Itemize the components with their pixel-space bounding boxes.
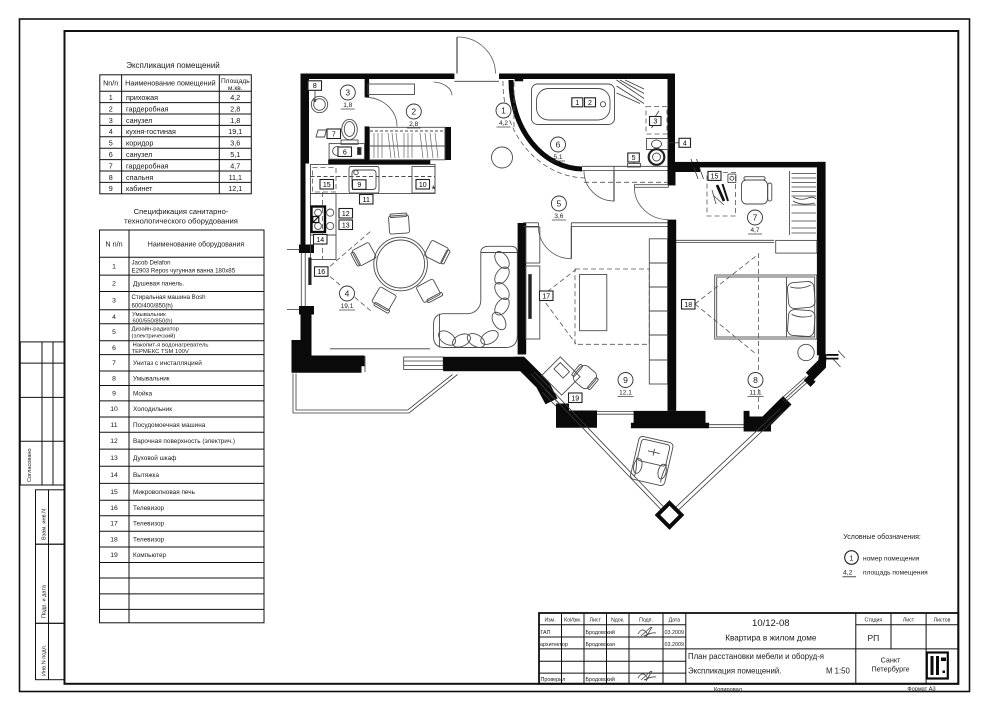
svg-text:Изм.: Изм. [544, 618, 555, 624]
svg-text:Наименование оборудования: Наименование оборудования [148, 241, 245, 249]
svg-text:Унитаз с инсталляцией: Унитаз с инсталляцией [133, 359, 202, 367]
svg-text:5,1: 5,1 [230, 150, 240, 159]
svg-text:600/400/850(h): 600/400/850(h) [132, 302, 173, 309]
svg-text:600/550/850(h): 600/550/850(h) [133, 318, 173, 324]
svg-text:5: 5 [557, 199, 562, 209]
svg-text:Подп.: Подп. [639, 618, 653, 624]
svg-text:Согласовано: Согласовано [27, 448, 33, 482]
svg-text:4: 4 [683, 141, 687, 148]
svg-text:технологического оборудования: технологического оборудования [124, 217, 238, 226]
svg-text:8: 8 [112, 376, 116, 383]
svg-text:1,8: 1,8 [230, 116, 240, 125]
svg-text:6: 6 [112, 345, 116, 352]
svg-text:Подр. и дата: Подр. и дата [42, 584, 48, 618]
svg-text:18: 18 [684, 302, 692, 309]
svg-text:архитектор: архитектор [540, 642, 568, 648]
svg-text:Инв.N подл.: Инв.N подл. [42, 644, 48, 676]
svg-text:Экспликация помещений.: Экспликация помещений. [688, 667, 781, 676]
svg-text:19: 19 [571, 395, 579, 402]
svg-text:Квартира в жилом доме: Квартира в жилом доме [725, 634, 817, 643]
svg-text:площадь помещения: площадь помещения [863, 570, 928, 577]
svg-text:номер помещения: номер помещения [863, 556, 920, 563]
svg-text:1: 1 [109, 93, 113, 102]
svg-text:4: 4 [112, 314, 116, 321]
svg-text:4,2: 4,2 [230, 93, 240, 102]
svg-text:9: 9 [357, 182, 361, 189]
svg-text:Умывальник: Умывальник [132, 312, 166, 318]
svg-text:(электрический): (электрический) [132, 333, 176, 340]
svg-text:5: 5 [112, 329, 116, 336]
svg-text:1: 1 [112, 264, 116, 271]
svg-text:3: 3 [345, 88, 350, 98]
svg-text:Петербурге: Петербурге [871, 665, 909, 674]
svg-text:15: 15 [110, 489, 118, 496]
svg-text:9: 9 [623, 375, 628, 385]
svg-text:Санкт: Санкт [881, 656, 901, 665]
svg-text:4,2: 4,2 [499, 120, 508, 127]
svg-text:санузел: санузел [126, 116, 152, 125]
svg-text:2: 2 [109, 104, 113, 113]
svg-text:М 1:50: М 1:50 [826, 667, 850, 676]
svg-text:2: 2 [112, 281, 116, 288]
svg-text:19: 19 [110, 552, 118, 559]
svg-text:4,7: 4,7 [750, 227, 759, 234]
svg-text:Лист: Лист [903, 618, 915, 624]
svg-text:Душевая панель.: Душевая панель. [133, 281, 184, 288]
svg-text:Лист: Лист [590, 618, 602, 624]
svg-text:Спецификация санитарно-: Спецификация санитарно- [134, 207, 229, 216]
svg-text:1: 1 [501, 106, 506, 116]
svg-text:ТЕРМЕКС TSM 100V: ТЕРМЕКС TSM 100V [132, 349, 189, 355]
svg-text:6: 6 [109, 150, 113, 159]
svg-text:4,7: 4,7 [230, 161, 240, 170]
svg-text:Jacob Delafon: Jacob Delafon [132, 260, 171, 267]
svg-text:15: 15 [323, 182, 331, 189]
svg-text:м.кв.: м.кв. [228, 85, 243, 92]
svg-text:Взам. инв.N: Взам. инв.N [42, 509, 48, 540]
svg-text:13: 13 [342, 222, 350, 229]
svg-text:7: 7 [332, 131, 336, 138]
svg-text:Условные обозначения:: Условные обозначения: [843, 533, 921, 541]
svg-text:11,1: 11,1 [229, 173, 242, 182]
svg-text:Телевизор: Телевизор [133, 537, 165, 544]
svg-text:17: 17 [542, 293, 550, 300]
svg-text:3: 3 [112, 298, 116, 305]
svg-text:9: 9 [112, 391, 116, 398]
svg-text:10/12-08: 10/12-08 [752, 618, 790, 629]
svg-text:17: 17 [110, 521, 118, 528]
svg-text:11,1: 11,1 [749, 390, 762, 397]
svg-text:Мойка: Мойка [133, 390, 152, 398]
svg-text:Nдок.: Nдок. [611, 618, 624, 624]
svg-text:Накопит-я водонагреватель: Накопит-я водонагреватель [133, 343, 209, 349]
svg-text:Телевизор: Телевизор [133, 505, 165, 512]
svg-text:Бродовский: Бродовский [586, 676, 615, 683]
svg-text:12: 12 [342, 211, 350, 218]
svg-text:4: 4 [109, 127, 113, 136]
svg-text:5: 5 [109, 139, 113, 148]
svg-text:7: 7 [753, 213, 758, 223]
svg-text:гардеробная: гардеробная [126, 104, 169, 113]
svg-text:3: 3 [109, 116, 113, 125]
svg-text:03.2009: 03.2009 [665, 642, 685, 648]
svg-text:5: 5 [632, 155, 636, 162]
svg-text:12,1: 12,1 [619, 390, 632, 397]
svg-text:13: 13 [110, 455, 118, 462]
svg-text:8: 8 [109, 173, 113, 182]
svg-text:12,1: 12,1 [228, 184, 242, 193]
svg-text:7: 7 [112, 360, 116, 367]
svg-text:19,1: 19,1 [341, 303, 354, 310]
svg-text:прихожая: прихожая [126, 93, 158, 102]
svg-text:ГАП: ГАП [541, 630, 551, 636]
svg-text:11: 11 [110, 422, 117, 429]
svg-text:6: 6 [343, 149, 347, 156]
svg-text:8: 8 [313, 83, 317, 90]
svg-text:Варочная поверхность (электр: Варочная поверхность (электрич.) [133, 438, 235, 445]
svg-text:Компьютер: Компьютер [133, 552, 167, 559]
svg-text:Холодильник: Холодильник [133, 406, 172, 413]
svg-text:Nn/n: Nn/n [103, 79, 118, 88]
svg-text:Стадия: Стадия [865, 618, 883, 624]
svg-text:9: 9 [109, 184, 113, 193]
svg-text:Духовой шкаф: Духовой шкаф [133, 454, 176, 462]
svg-text:Стиральная машина Bosh: Стиральная машина Bosh [132, 294, 206, 301]
svg-text:15: 15 [711, 174, 719, 181]
svg-text:11: 11 [363, 197, 370, 204]
svg-text:2,8: 2,8 [230, 104, 240, 113]
svg-text:спальня: спальня [126, 173, 153, 182]
svg-text:3,6: 3,6 [230, 139, 240, 148]
svg-text:Копировал: Копировал [714, 687, 742, 693]
svg-text:кухня-гостиная: кухня-гостиная [126, 127, 176, 136]
svg-text:кабинет: кабинет [126, 184, 153, 193]
svg-text:Вытяжка: Вытяжка [133, 472, 159, 479]
svg-text:8: 8 [753, 375, 758, 385]
svg-text:16: 16 [110, 505, 118, 512]
svg-text:1: 1 [575, 100, 579, 107]
svg-text:Телевизор: Телевизор [133, 521, 165, 528]
svg-text:гардеробная: гардеробная [126, 161, 169, 170]
svg-text:Проверил: Проверил [541, 677, 566, 683]
svg-text:Экспликация помещений: Экспликация помещений [126, 61, 220, 70]
svg-text:Формат А3: Формат А3 [907, 687, 935, 693]
svg-text:3,6: 3,6 [554, 213, 563, 220]
svg-text:4: 4 [345, 289, 350, 299]
svg-text:*: * [432, 184, 437, 196]
svg-text:4,2: 4,2 [843, 570, 853, 577]
svg-text:Дизайн-радиатор: Дизайн-радиатор [132, 325, 180, 332]
svg-text:2: 2 [588, 100, 592, 107]
svg-text:E2903 Repos чугунная ванна: E2903 Repos чугунная ванна 180х85 [132, 268, 236, 275]
svg-text:7: 7 [109, 161, 113, 170]
svg-text:Умывальник: Умывальник [133, 376, 170, 383]
svg-text:РП: РП [868, 633, 880, 643]
svg-text:Бродовская: Бродовская [586, 642, 616, 648]
svg-text:12: 12 [110, 438, 118, 445]
svg-text:14: 14 [110, 472, 118, 479]
svg-text:03.2009: 03.2009 [665, 630, 685, 636]
svg-text:коридор: коридор [126, 139, 153, 148]
svg-text:Листов: Листов [934, 618, 951, 624]
svg-text:Бродовский: Бродовский [586, 629, 615, 636]
svg-text:Наименование помещений: Наименование помещений [125, 79, 215, 88]
svg-text:14: 14 [316, 237, 324, 244]
svg-text:3: 3 [653, 119, 657, 126]
svg-text:5,1: 5,1 [553, 154, 562, 161]
svg-text:План расстановки мебели и: План расстановки мебели и оборуд-я [688, 652, 824, 661]
svg-text:Дата: Дата [669, 618, 681, 624]
svg-text:18: 18 [110, 537, 118, 544]
svg-text:2: 2 [411, 107, 416, 117]
svg-text:Посудомоечная машина: Посудомоечная машина [133, 422, 206, 429]
svg-text:6: 6 [556, 140, 561, 150]
svg-text:2,8: 2,8 [409, 121, 418, 128]
svg-text:19,1: 19,1 [228, 127, 242, 136]
svg-text:санузел: санузел [126, 150, 152, 159]
svg-text:N n/n: N n/n [105, 240, 122, 249]
svg-text:Микроволновая печь: Микроволновая печь [133, 489, 196, 496]
svg-text:1,8: 1,8 [343, 102, 352, 109]
svg-text:1: 1 [849, 554, 853, 563]
svg-text:КоИзм.: КоИзм. [564, 618, 581, 624]
svg-text:16: 16 [317, 269, 325, 276]
svg-text:Площадь: Площадь [221, 78, 250, 85]
svg-text:10: 10 [419, 182, 427, 189]
svg-text:10: 10 [110, 406, 118, 413]
